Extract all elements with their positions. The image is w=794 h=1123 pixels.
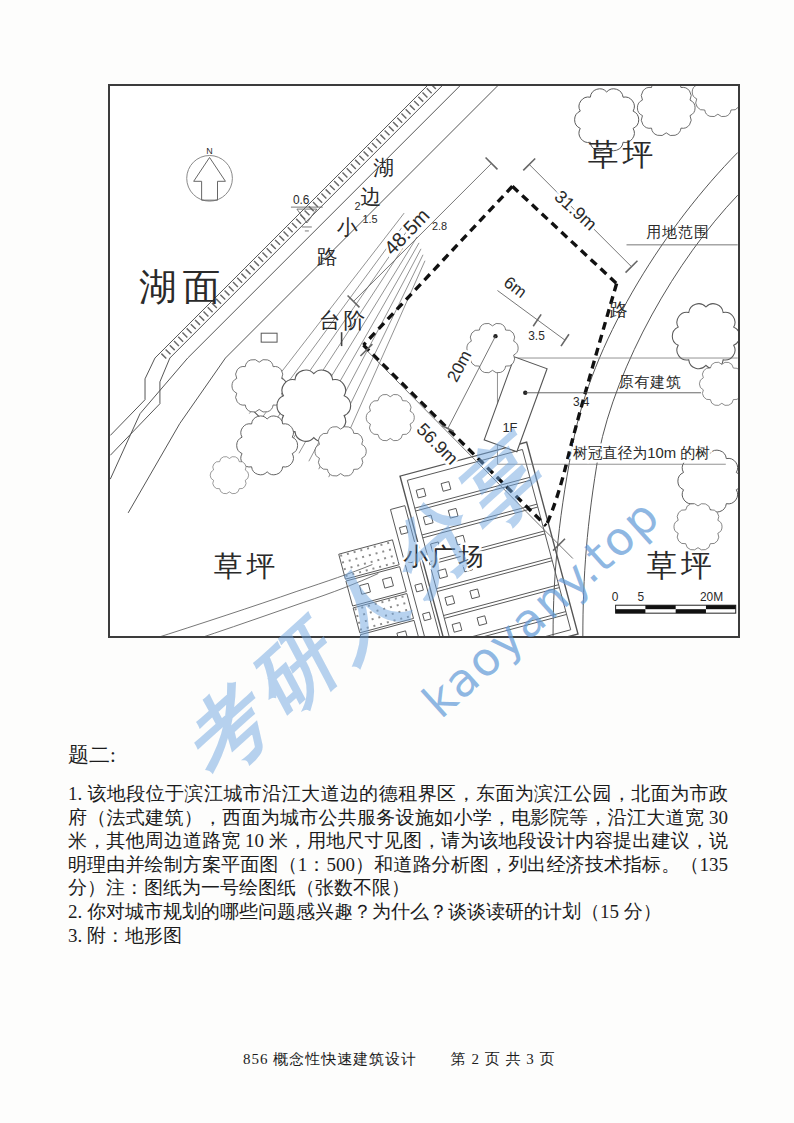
contour-1-5: 1.5 bbox=[362, 213, 377, 225]
plaza-paving bbox=[323, 442, 580, 636]
north-label: N bbox=[206, 146, 212, 156]
scale-bar: 0 5 20M bbox=[612, 590, 736, 613]
tree-note-label: 树冠直径为10m 的树 bbox=[573, 445, 710, 461]
page-footer: 856 概念性快速建筑设计 第 2 页 共 3 页 bbox=[243, 1050, 556, 1069]
question-title: 题二: bbox=[68, 741, 728, 769]
steps-label: 台阶 bbox=[319, 308, 369, 333]
question-item-1: 1. 该地段位于滨江城市沿江大道边的德租界区，东面为滨江公园，北面为市政府（法式… bbox=[68, 782, 728, 900]
path-char-3: 小 bbox=[337, 215, 358, 238]
north-arrow-icon: N bbox=[187, 146, 233, 202]
lawn-label-top-right: 草坪 bbox=[588, 137, 657, 172]
scale-start: 0 bbox=[612, 590, 619, 604]
lake-label: 湖面 bbox=[139, 266, 226, 308]
question-item-2: 2. 你对城市规划的哪些问题感兴趣？为什么？谈谈读研的计划（15 分） bbox=[68, 900, 728, 924]
dim-tree-to-building: 6m bbox=[500, 273, 530, 302]
contour-2-8: 2.8 bbox=[432, 220, 447, 232]
footer-page-number: 第 2 页 共 3 页 bbox=[451, 1051, 556, 1067]
site-boundary-label: 用地范围 bbox=[646, 224, 709, 240]
question-block: 题二: 1. 该地段位于滨江城市沿江大道边的德租界区，东面为滨江公园，北面为市政… bbox=[68, 741, 728, 947]
dim-building-gap: 3.5 bbox=[528, 329, 545, 343]
site-plan-map: N 0 5 20M 湖面 湖 边 bbox=[108, 84, 740, 638]
existing-building-footprint bbox=[484, 357, 701, 452]
building-floor-label: 1F bbox=[502, 420, 517, 435]
footer-course-code: 856 概念性快速建筑设计 bbox=[243, 1051, 417, 1067]
site-plan-drawing: N 0 5 20M 湖面 湖 边 bbox=[110, 86, 738, 636]
scanned-exam-page: N 0 5 20M 湖面 湖 边 bbox=[0, 0, 794, 1123]
existing-building-label: 原有建筑 bbox=[619, 374, 682, 390]
scale-mid: 5 bbox=[637, 590, 644, 604]
contour-2: 2 bbox=[355, 200, 361, 212]
road-label: 路 bbox=[610, 300, 628, 320]
lawn-label-bottom-right: 草坪 bbox=[646, 548, 715, 583]
tree-clouds bbox=[210, 86, 738, 550]
plaza-label: 小广场 bbox=[403, 543, 486, 570]
dim-building-spot: 3.4 bbox=[573, 395, 590, 409]
dim-sw-edge: 56.9m bbox=[413, 419, 462, 468]
lawn-label-bottom-left: 草坪 bbox=[214, 550, 280, 582]
scale-end: 20M bbox=[700, 590, 723, 604]
path-char-2: 边 bbox=[360, 185, 381, 208]
dim-nw-edge: 48.5m bbox=[380, 204, 434, 259]
path-char-1: 湖 bbox=[373, 156, 394, 179]
question-item-3: 3. 附：地形图 bbox=[68, 924, 728, 948]
site-tree-10m bbox=[467, 323, 518, 372]
dim-water-level: 0.6 bbox=[293, 193, 310, 207]
path-char-4: 路 bbox=[317, 245, 338, 268]
